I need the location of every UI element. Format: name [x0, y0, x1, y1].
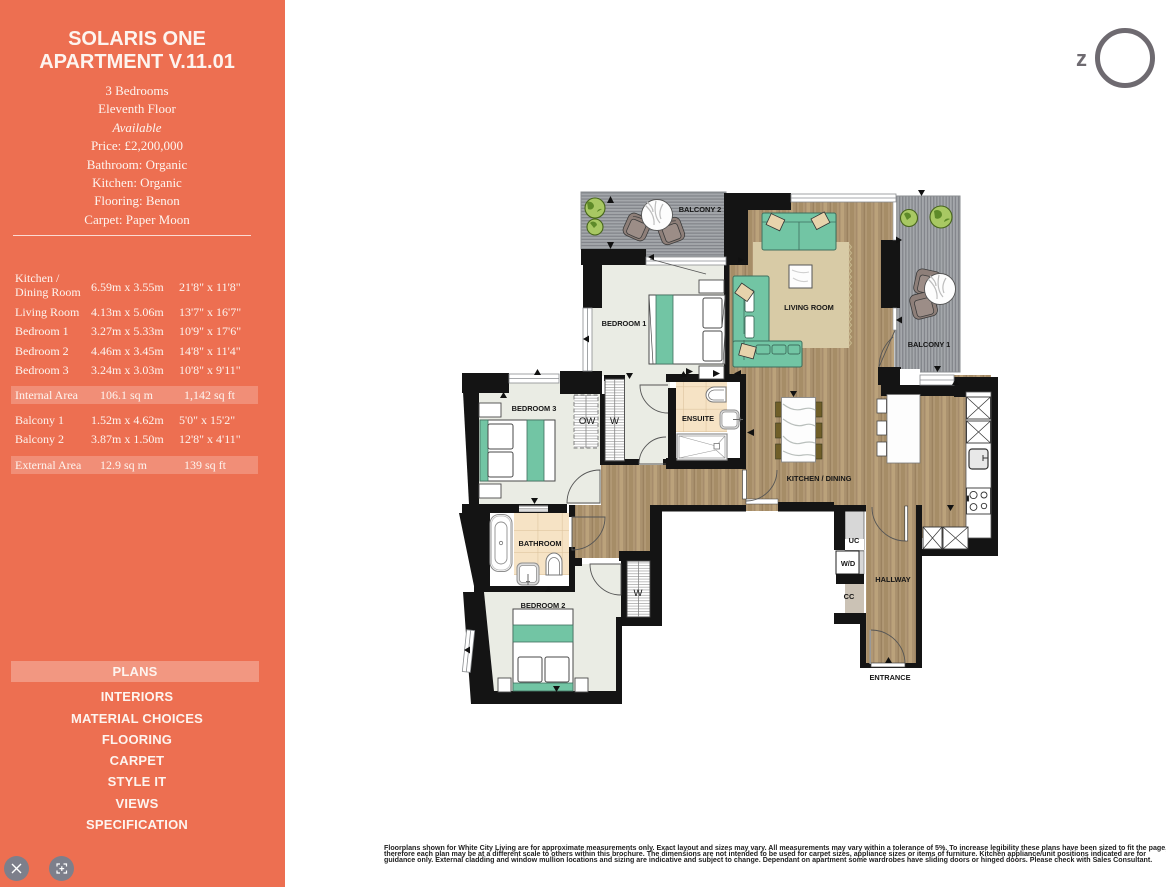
- svg-text:BEDROOM 2: BEDROOM 2: [521, 601, 566, 610]
- svg-text:OW: OW: [579, 416, 595, 427]
- svg-text:CC: CC: [844, 592, 855, 601]
- svg-text:BEDROOM 3: BEDROOM 3: [512, 404, 557, 413]
- svg-text:W/D: W/D: [841, 559, 856, 568]
- svg-text:BEDROOM 1: BEDROOM 1: [602, 319, 647, 328]
- svg-text:z: z: [1076, 46, 1087, 71]
- svg-text:LIVING ROOM: LIVING ROOM: [784, 303, 834, 312]
- svg-text:W: W: [610, 416, 619, 427]
- svg-text:ENSUITE: ENSUITE: [682, 414, 714, 423]
- svg-text:BATHROOM: BATHROOM: [519, 539, 562, 548]
- svg-text:HALLWAY: HALLWAY: [875, 575, 911, 584]
- svg-text:BALCONY 2: BALCONY 2: [679, 205, 722, 214]
- svg-text:ENTRANCE: ENTRANCE: [869, 673, 910, 682]
- svg-text:KITCHEN / DINING: KITCHEN / DINING: [787, 474, 852, 483]
- svg-text:UC: UC: [849, 536, 860, 545]
- svg-text:BALCONY 1: BALCONY 1: [908, 340, 951, 349]
- svg-text:W: W: [634, 588, 643, 599]
